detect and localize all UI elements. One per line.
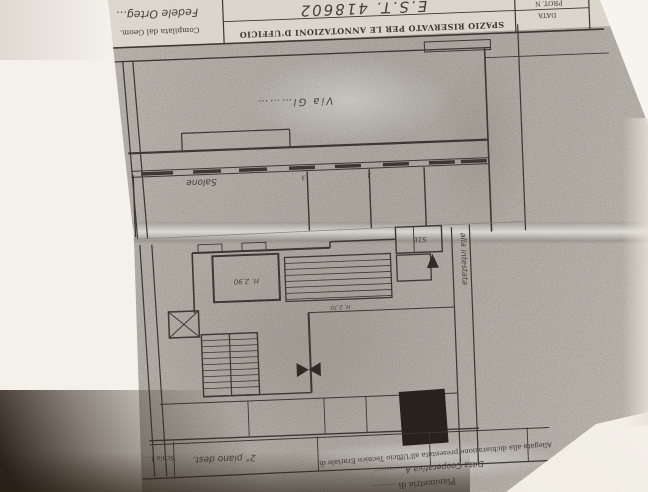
annotation-box-label: SPAZIO RISERVATO PER LE ANNOTAZIONI D'UF… [239,20,504,40]
window-mark: 3 [367,171,371,178]
room-height-label: H. 2,90 [233,277,259,286]
prot-label: PROT. N [534,0,562,8]
paper-edge-curl [622,118,648,426]
window-mark: 3 [301,174,305,181]
handwritten-ref-number: E.S.T. 418602 [298,0,427,20]
small-height-label: H. 2,70 [330,303,351,310]
compiled-by-label: Compilata dal Geom. [120,26,200,38]
door-marker [426,254,439,268]
room-code-label: S1b [412,235,426,244]
data-label: DATA [538,11,557,20]
photo-of-cadastral-plan-document: Fedele Orteg… Compilata dal Geom. E.S.T.… [0,0,648,492]
window-segments [141,161,487,174]
street-name-label: Via Gl……… [256,95,334,109]
room-label-salone: Salone [186,176,217,187]
shadow-bottom-edge [0,452,470,492]
ramp-hatching [285,259,392,299]
upper-floor-plan [108,21,616,246]
vertical-side-note: alla intestata [459,232,470,285]
compiler-signature: Fedele Orteg… [116,6,199,22]
section-bowtie-marker [296,363,309,377]
soft-shadow [0,0,110,60]
